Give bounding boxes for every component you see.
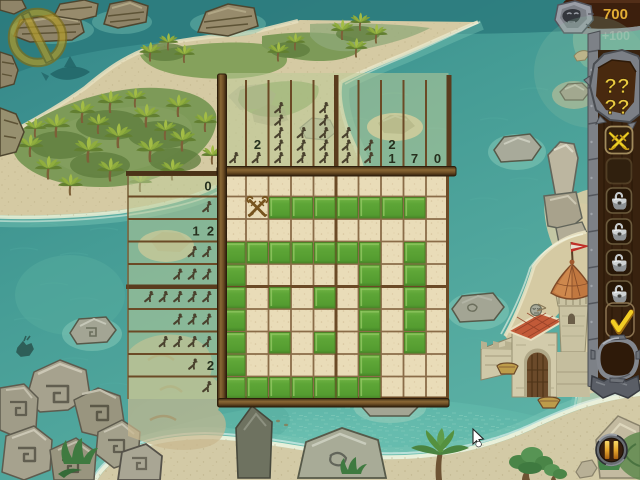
- svg-text:2: 2: [207, 358, 214, 373]
- svg-text:1: 1: [192, 224, 199, 239]
- svg-text:??: ??: [604, 75, 630, 98]
- svg-text:2: 2: [388, 137, 395, 152]
- svg-text:7: 7: [411, 151, 418, 166]
- svg-text:0: 0: [434, 151, 441, 166]
- svg-text:0: 0: [204, 179, 211, 194]
- svg-text:1: 1: [388, 151, 395, 166]
- svg-text:2: 2: [254, 137, 261, 152]
- svg-text:2: 2: [207, 224, 214, 239]
- svg-text:??: ??: [604, 96, 630, 119]
